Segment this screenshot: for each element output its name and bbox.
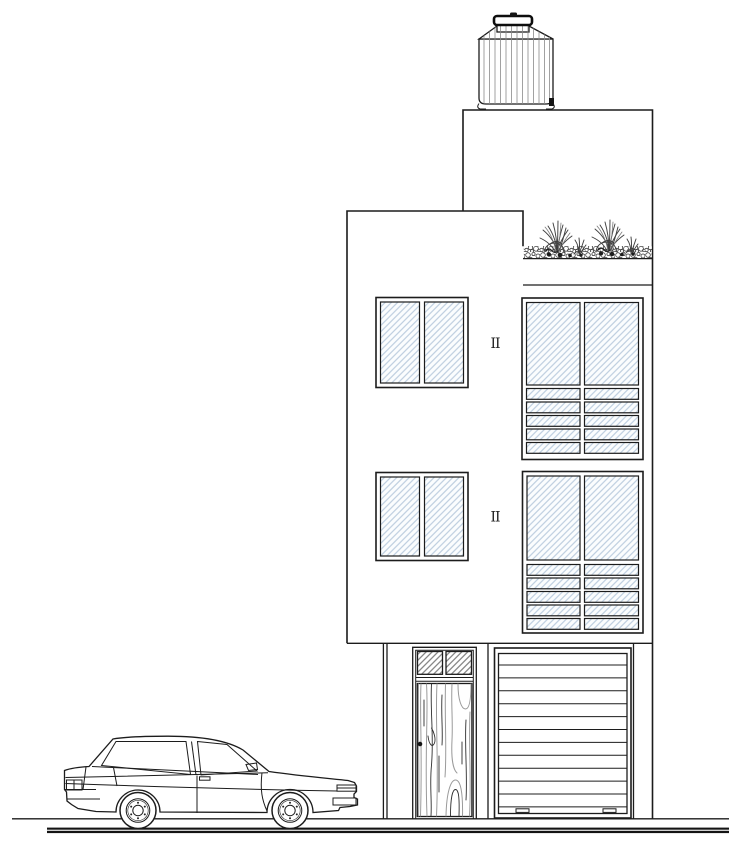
glass-pane	[527, 476, 580, 560]
tank-lid	[494, 16, 532, 25]
third-floor-window-right	[522, 298, 643, 460]
glass-pane	[425, 302, 464, 383]
glass-pane	[527, 303, 581, 386]
water-tank	[478, 13, 555, 110]
glass-pane	[381, 302, 420, 383]
elevation-sheet: II II	[0, 0, 752, 842]
car-front-wheel	[272, 793, 308, 829]
window-marker-second-floor: II	[490, 510, 500, 526]
glass-pane	[585, 303, 639, 386]
street-surface	[47, 828, 729, 830]
glass-pane	[585, 476, 639, 560]
glass-pane	[425, 477, 464, 556]
street-surface	[47, 831, 729, 833]
second-floor-window-left	[376, 473, 468, 561]
tank-outlet-fitting	[549, 98, 554, 106]
entry-door	[413, 647, 477, 819]
elevation-drawing: II II	[0, 0, 752, 842]
garage-door	[495, 648, 632, 818]
door-knob	[418, 742, 423, 747]
car	[65, 736, 358, 828]
door-leaf	[417, 684, 472, 817]
tank-lid-knob	[510, 13, 517, 17]
glass-pane	[381, 477, 420, 556]
facade-left-and-top-edge	[347, 211, 523, 643]
second-floor-window-right	[523, 472, 644, 634]
transom-panel	[418, 652, 443, 675]
third-floor-window-left	[376, 298, 468, 388]
car-rear-wheel	[120, 793, 156, 829]
tank-body	[479, 39, 553, 104]
transom-panel	[446, 652, 472, 675]
ground	[12, 819, 729, 833]
roof-garden	[523, 220, 653, 285]
window-marker-third-floor: II	[490, 336, 500, 352]
